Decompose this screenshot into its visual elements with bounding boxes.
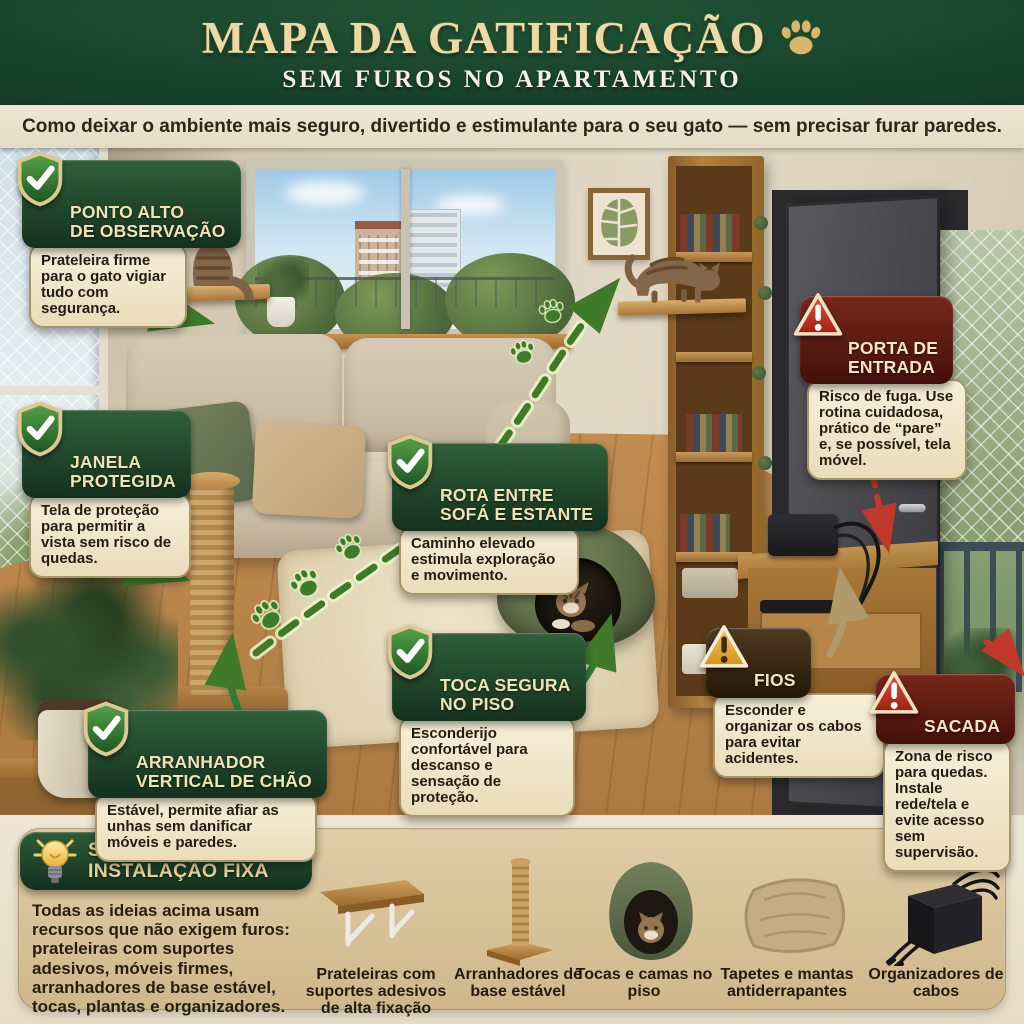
product-label: Prateleiras com suportes adesivos de alt… bbox=[296, 967, 456, 1017]
title-row: MAPA DA GATIFICAÇÃO bbox=[202, 12, 822, 64]
callout-title: FIOS bbox=[754, 670, 796, 690]
product-cable-organizer-icon bbox=[880, 858, 1010, 971]
scratcher-top-cap bbox=[184, 472, 240, 490]
callout-header: FIOS bbox=[706, 628, 811, 698]
warning-triangle-amber-icon bbox=[698, 619, 750, 675]
check-shield-icon bbox=[80, 701, 132, 757]
callout-body: Zona de risco para quedas. Instale rede/… bbox=[883, 739, 1011, 872]
check-shield-icon bbox=[384, 434, 436, 490]
callout-rota: ROTA ENTRE SOFÁ E ESTANTE Caminho elevad… bbox=[392, 443, 608, 595]
shelf-board bbox=[676, 452, 752, 462]
paw-icon bbox=[780, 19, 822, 57]
product-label: Arranhadores de base estável bbox=[443, 967, 593, 1001]
callout-body: Estável, permite afiar as unhas sem dani… bbox=[95, 793, 317, 862]
tagline-text: Como deixar o ambiente mais seguro, dive… bbox=[22, 116, 1002, 138]
page-title: MAPA DA GATIFICAÇÃO bbox=[202, 12, 766, 64]
product-scratcher-icon bbox=[470, 854, 570, 971]
product-label: Tapetes e mantas antiderrapantes bbox=[702, 967, 872, 1001]
vine-leaf bbox=[752, 366, 766, 380]
lightbulb-icon bbox=[32, 835, 78, 887]
books bbox=[680, 514, 730, 552]
callout-title: ROTA ENTRE SOFÁ E ESTANTE bbox=[440, 485, 593, 523]
callout-title: JANELA PROTEGIDA bbox=[70, 452, 176, 490]
callout-header: SACADA bbox=[876, 674, 1015, 744]
callout-body: Risco de fuga. Use rotina cuidadosa, prá… bbox=[807, 379, 967, 480]
check-shield-icon bbox=[14, 401, 66, 457]
solutions-body: Todas as ideias acima usam recursos que … bbox=[32, 901, 316, 1016]
callout-body: Esconder e organizar os cabos para evita… bbox=[713, 693, 885, 778]
callout-title: TOCA SEGURA NO PISO bbox=[440, 675, 571, 713]
header-banner: MAPA DA GATIFICAÇÃO SEM FUROS NO APARTAM… bbox=[0, 0, 1024, 105]
callout-header: PORTA DE ENTRADA bbox=[800, 296, 953, 384]
books bbox=[686, 414, 742, 452]
vine-leaf bbox=[758, 456, 772, 470]
vine-leaf bbox=[754, 216, 768, 230]
callout-header: ARRANHADOR VERTICAL DE CHÃO bbox=[88, 710, 327, 798]
callout-body: Caminho elevado estimula exploração e mo… bbox=[399, 526, 579, 595]
storage-basket bbox=[682, 568, 738, 598]
callout-janela: JANELA PROTEGIDA Tela de proteção para p… bbox=[22, 410, 191, 578]
product-label: Organizadores de cabos bbox=[856, 967, 1016, 1001]
cloud bbox=[285, 181, 365, 205]
callout-header: PONTO ALTO DE OBSERVAÇÃO bbox=[22, 160, 241, 248]
callout-body: Prateleira firme para o gato vigiar tudo… bbox=[29, 243, 187, 328]
callout-header: TOCA SEGURA NO PISO bbox=[392, 633, 586, 721]
pillow-tan bbox=[252, 421, 367, 519]
callout-title: PONTO ALTO DE OBSERVAÇÃO bbox=[70, 202, 226, 240]
main-window bbox=[246, 160, 564, 338]
infographic-canvas: MAPA DA GATIFICAÇÃO SEM FUROS NO APARTAM… bbox=[0, 0, 1024, 1024]
product-mat-icon bbox=[730, 864, 860, 965]
callout-title: SACADA bbox=[924, 716, 1000, 736]
callout-fios: FIOS Esconder e organizar os cabos para … bbox=[706, 628, 885, 778]
shelf-board bbox=[676, 352, 752, 362]
check-shield-icon bbox=[14, 151, 66, 207]
callout-ponto-alto: PONTO ALTO DE OBSERVAÇÃO Prateleira firm… bbox=[22, 160, 241, 328]
callout-toca: TOCA SEGURA NO PISO Esconderijo confortá… bbox=[392, 633, 586, 817]
warning-triangle-icon bbox=[792, 287, 844, 343]
warning-triangle-icon bbox=[868, 665, 920, 721]
vine-leaf bbox=[758, 286, 772, 300]
callout-header: JANELA PROTEGIDA bbox=[22, 410, 191, 498]
tagline-band: Como deixar o ambiente mais seguro, dive… bbox=[0, 105, 1024, 148]
cat-on-bookshelf bbox=[622, 242, 726, 308]
left-window-bar bbox=[0, 386, 99, 395]
window-mullion bbox=[401, 169, 410, 329]
product-label: Tocas e camas no piso bbox=[574, 967, 714, 1001]
sill-plant-pot bbox=[267, 297, 295, 327]
callout-porta: PORTA DE ENTRADA Risco de fuga. Use roti… bbox=[800, 296, 967, 480]
page-subtitle: SEM FUROS NO APARTAMENTO bbox=[282, 66, 741, 94]
check-shield-icon bbox=[384, 624, 436, 680]
cables bbox=[826, 508, 916, 628]
callout-body: Esconderijo confortável para descanso e … bbox=[399, 716, 575, 817]
scratching-post bbox=[190, 480, 234, 696]
callout-title: ARRANHADOR VERTICAL DE CHÃO bbox=[136, 752, 312, 790]
callout-header: ROTA ENTRE SOFÁ E ESTANTE bbox=[392, 443, 608, 531]
callout-arranhador: ARRANHADOR VERTICAL DE CHÃO Estável, per… bbox=[88, 710, 327, 862]
callout-title: PORTA DE ENTRADA bbox=[848, 338, 938, 376]
product-shelf-icon bbox=[310, 854, 430, 959]
product-cave-icon bbox=[596, 854, 706, 969]
callout-sacada: SACADA Zona de risco para quedas. Instal… bbox=[876, 674, 1015, 872]
callout-body: Tela de proteção para permitir a vista s… bbox=[29, 493, 191, 578]
